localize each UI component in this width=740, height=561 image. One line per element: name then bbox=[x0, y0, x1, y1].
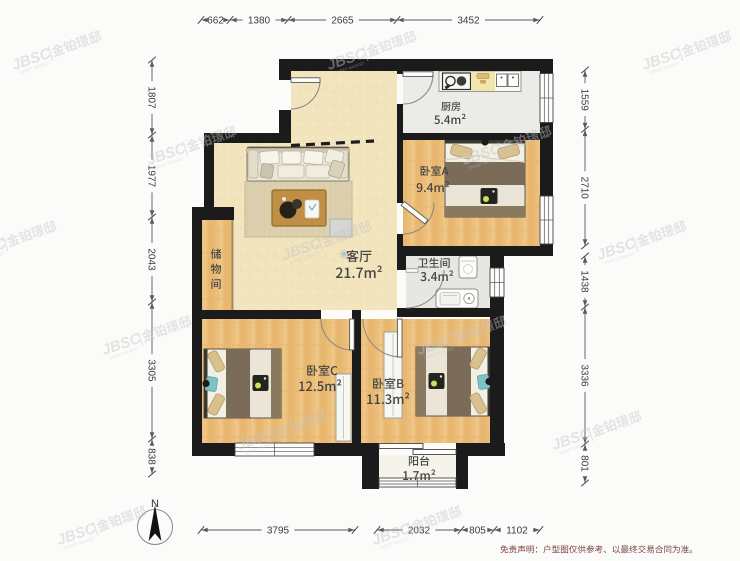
svg-text:838: 838 bbox=[146, 448, 157, 465]
svg-text:1807: 1807 bbox=[146, 86, 157, 109]
svg-text:3305: 3305 bbox=[146, 359, 157, 382]
svg-text:3336: 3336 bbox=[579, 364, 590, 387]
svg-text:662: 662 bbox=[207, 15, 224, 26]
svg-text:1438: 1438 bbox=[579, 270, 590, 293]
svg-text:1102: 1102 bbox=[506, 525, 528, 536]
svg-text:805: 805 bbox=[469, 525, 486, 536]
svg-text:3452: 3452 bbox=[457, 15, 480, 26]
svg-text:2043: 2043 bbox=[146, 248, 157, 271]
svg-text:1559: 1559 bbox=[579, 89, 590, 112]
svg-text:3795: 3795 bbox=[267, 525, 290, 536]
svg-text:2665: 2665 bbox=[331, 15, 354, 26]
svg-text:1380: 1380 bbox=[248, 15, 271, 26]
svg-text:801: 801 bbox=[579, 455, 590, 472]
svg-text:2710: 2710 bbox=[579, 177, 590, 200]
